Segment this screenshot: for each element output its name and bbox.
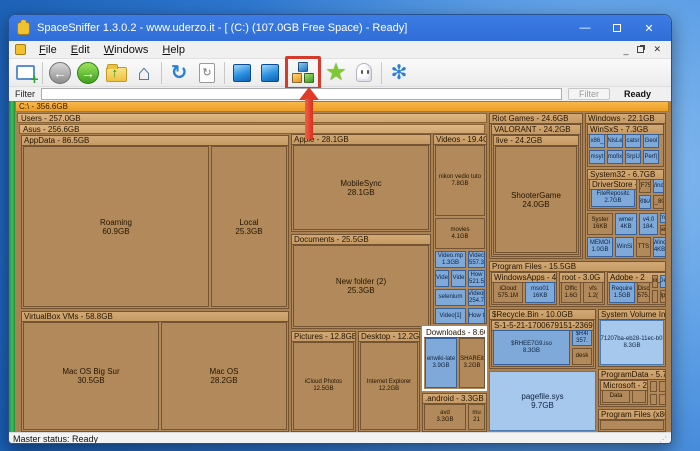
- minimize-button[interactable]: —: [571, 18, 599, 38]
- node-msyt[interactable]: msyt: [589, 150, 605, 164]
- node-icloud[interactable]: iCloud575.1M: [493, 282, 523, 303]
- node-avd[interactable]: avd3.3GB: [424, 404, 466, 430]
- filter-label: Filter: [15, 89, 35, 99]
- node-icloud-label: iCloud575.1M: [498, 286, 518, 300]
- node-geol-label: Geol: [645, 138, 658, 145]
- node-data-label: Data: [610, 393, 623, 400]
- node-users[interactable]: Users - 257.0GB: [17, 113, 487, 123]
- node-pfx86-empty: [600, 420, 664, 430]
- node-android-header[interactable]: .android - 3.3GB: [423, 394, 486, 404]
- gear-flower-icon: ✻: [391, 60, 408, 85]
- node-v40[interactable]: v4.0184.: [639, 213, 658, 235]
- home-icon: ⌂: [137, 60, 150, 86]
- node-mu[interactable]: mu21: [468, 404, 485, 430]
- node-shootergame-label: ShooterGame24.0GB: [511, 191, 561, 209]
- node-wmer[interactable]: wmer4KB: [615, 213, 637, 235]
- settings-button[interactable]: ✻: [386, 60, 412, 86]
- toolbar-separator: [161, 62, 162, 84]
- node-windc[interactable]: Windc: [653, 179, 664, 193]
- node-how-label: How521.5: [469, 272, 484, 286]
- go-back-button[interactable]: ←: [47, 60, 73, 86]
- node-video-mp[interactable]: Video.mp1.3GB: [435, 251, 466, 268]
- filter-star-button[interactable]: ★: [323, 60, 349, 86]
- node-winsi[interactable]: WinSi: [615, 237, 634, 257]
- refresh-selection-button[interactable]: ↻: [194, 60, 220, 86]
- node-adobe-empty: [652, 290, 658, 303]
- mdi-restore-button[interactable]: [637, 46, 644, 53]
- node-shareit[interactable]: SHAREit3.2GB: [459, 338, 485, 388]
- titlebar[interactable]: SpaceSniffer 1.3.0.2 - www.uderzo.it - […: [9, 15, 671, 41]
- mdi-app-icon: [15, 44, 26, 55]
- menubar: File Edit Windows Help _ ✕: [9, 41, 671, 59]
- node-mofix-label: mofix: [608, 154, 622, 161]
- back-arrow-icon: ←: [49, 62, 71, 84]
- node-windows-header[interactable]: Windows - 22.1GB: [586, 114, 665, 124]
- node-require[interactable]: Require1.5GB: [609, 282, 635, 303]
- node-offic[interactable]: Offic1.6G: [561, 282, 581, 303]
- node-shareit-label: SHAREit3.2GB: [460, 356, 484, 370]
- node-v40-label: v4.0184.: [643, 217, 655, 231]
- node-perf[interactable]: Perf(: [643, 150, 659, 164]
- node-enwiki-late[interactable]: enwiki-late3.9GB: [425, 338, 457, 388]
- node-recycle-bin-header[interactable]: $Recycle.Bin - 10.0GB: [490, 310, 595, 320]
- annotation-arrow-shaft: [305, 99, 313, 139]
- node-virtualbox-vms-header[interactable]: VirtualBox VMs - 58.8GB: [22, 312, 288, 322]
- node-nisle-label: NisLe: [607, 138, 622, 145]
- toolbar-separator: [224, 62, 225, 84]
- node-movies[interactable]: movies4.1GB: [435, 218, 485, 249]
- node-macos[interactable]: Mac OS28.2GB: [161, 322, 287, 430]
- node-icloud-photos-label: iCloud Photos12.5GB: [305, 379, 342, 393]
- node-catsr[interactable]: catsr: [625, 134, 641, 148]
- toolbar-separator: [381, 62, 382, 84]
- ghost-icon: [356, 63, 372, 82]
- node-guid-file-label: {471207ba-eb28-11ec-b03c8.3GB: [600, 336, 664, 350]
- node-documents-header[interactable]: Documents - 25.5GB: [292, 235, 430, 245]
- node-de-label: De: [660, 278, 666, 285]
- mdi-minimize-button[interactable]: _: [623, 45, 628, 55]
- node-vide-1[interactable]: Vide: [435, 270, 449, 287]
- node-rltka[interactable]: RltkA: [639, 195, 651, 209]
- filter-status: Ready: [624, 89, 651, 99]
- node-geol[interactable]: Geol: [643, 134, 659, 148]
- node-data[interactable]: Data: [602, 390, 630, 403]
- node-srpu[interactable]: SrpU: [625, 150, 641, 164]
- refresh-document-icon: ↻: [199, 63, 215, 83]
- node-pd-e1: [650, 381, 657, 392]
- filter-button[interactable]: Filter: [568, 88, 610, 100]
- menu-file[interactable]: File: [32, 43, 64, 57]
- close-button[interactable]: ✕: [635, 18, 663, 38]
- treemap: C:\ - 356.6GBUsers - 257.0GBAsus - 256.6…: [15, 101, 671, 432]
- refresh-button[interactable]: ↻: [166, 60, 192, 86]
- node-live-header[interactable]: live - 24.2GB: [494, 136, 578, 146]
- node-syster[interactable]: Syster16KB: [587, 213, 613, 235]
- node-internet-explorer[interactable]: Internet Explorer12.2GB: [360, 342, 418, 430]
- node-x80[interactable]: X_80.: [653, 195, 664, 209]
- node-program-files-header[interactable]: Program Files - 15.5GB: [490, 262, 665, 272]
- node-guid-file[interactable]: {471207ba-eb28-11ec-b03c8.3GB: [600, 320, 664, 365]
- node-how-t-label: How t: [469, 313, 484, 320]
- node-catsr-label: catsr: [626, 138, 639, 145]
- resize-grip[interactable]: ⋰: [659, 435, 667, 444]
- node-set-label: set: [660, 227, 666, 234]
- maximize-icon: [613, 24, 621, 32]
- node-shootergame[interactable]: ShooterGame24.0GB: [495, 146, 577, 253]
- cube-icon: [233, 64, 251, 82]
- node-riot-games-header[interactable]: Riot Games - 24.6GB: [490, 114, 582, 124]
- menu-edit[interactable]: Edit: [64, 43, 97, 57]
- colored-cubes-icon: [292, 62, 314, 84]
- node-movies-label: movies4.1GB: [450, 227, 469, 241]
- node-enwiki-late-label: enwiki-late3.9GB: [427, 356, 455, 370]
- node-roaming[interactable]: Roaming60.9GB: [23, 146, 209, 307]
- node-videc[interactable]: Videc557.3: [468, 251, 485, 268]
- node-video-mp-label: Video.mp1.3GB: [438, 253, 463, 267]
- filter-bar: Filter Filter Ready: [9, 87, 671, 101]
- node-winc[interactable]: Winc4KB: [653, 237, 666, 257]
- node-tts[interactable]: TTS: [636, 237, 651, 257]
- node-c-drive[interactable]: C:\ - 356.6GB: [15, 101, 669, 112]
- node-mu-label: mu21: [472, 410, 480, 424]
- refresh-icon: ↻: [171, 60, 188, 85]
- toolbar-separator: [42, 62, 43, 84]
- node-mi-label: mi: [660, 215, 666, 222]
- node-macos-big-sur[interactable]: Mac OS Big Sur30.5GB: [23, 322, 159, 430]
- node-npc-label: Npc: [660, 293, 666, 300]
- ghost-filter-button[interactable]: [351, 60, 377, 86]
- new-view-icon: [16, 65, 35, 80]
- node-bin-label: bin: [652, 278, 658, 285]
- more-detail-button[interactable]: [257, 60, 283, 86]
- node-vfs-label: vfs1.2(: [588, 286, 598, 300]
- node-disc-label: Disc575.: [638, 286, 650, 300]
- file-classes-button[interactable]: [290, 60, 316, 86]
- node-pd-e2: [659, 381, 666, 392]
- toolbar: ← → ⌂ ↻ ↻ ★ ✻: [9, 59, 671, 87]
- node-nisle[interactable]: NisLe: [607, 134, 623, 148]
- app-icon: [17, 22, 30, 35]
- node-appdata-header[interactable]: AppData - 86.5GB: [22, 136, 288, 146]
- node-vfs[interactable]: vfs1.2(: [583, 282, 603, 303]
- node-srpu-label: SrpU: [626, 154, 640, 161]
- node-internet-explorer-label: Internet Explorer12.2GB: [367, 379, 411, 393]
- node-perf-label: Perf(: [644, 154, 657, 161]
- menu-windows[interactable]: Windows: [97, 43, 156, 57]
- node-f75[interactable]: {F75: [639, 179, 651, 193]
- node-vide-2[interactable]: Vide: [451, 270, 466, 287]
- node-msyt-label: msyt: [591, 154, 604, 161]
- less-detail-button[interactable]: [229, 60, 255, 86]
- node-selenium-label: selenium: [438, 294, 462, 301]
- node-macos-label: Mac OS28.2GB: [210, 367, 239, 385]
- mdi-close-button[interactable]: ✕: [653, 44, 661, 55]
- home-button[interactable]: ⌂: [131, 60, 157, 86]
- node-ms-empty: [632, 390, 646, 403]
- node-de[interactable]: De: [660, 275, 666, 288]
- node-tts-label: TTS: [638, 244, 649, 251]
- node-local-label: Local25.3GB: [235, 218, 262, 236]
- node-filerepository[interactable]: FileRepositc2.7GB: [591, 189, 635, 207]
- node-roaming-label: Roaming60.9GB: [100, 218, 132, 236]
- node-vide-2-label: Vide: [453, 275, 465, 282]
- node-r4i[interactable]: $R4I357.: [572, 330, 592, 346]
- node-desk-label: desk: [576, 353, 589, 360]
- node-mso01[interactable]: mso0116KB: [525, 282, 555, 303]
- node-x80-label: X_80.: [653, 199, 664, 206]
- node-vide-1-label: Vide: [436, 275, 448, 282]
- node-selenium[interactable]: selenium: [435, 289, 466, 306]
- node-f75-label: {F75: [639, 183, 651, 190]
- forward-arrow-icon: →: [77, 62, 99, 84]
- node-filerepository-label: FileRepositc2.7GB: [596, 191, 629, 205]
- node-mi[interactable]: mi: [660, 213, 666, 223]
- node-rltka-label: RltkA: [639, 199, 651, 206]
- node-npc[interactable]: Npc: [660, 290, 666, 303]
- node-icloud-photos[interactable]: iCloud Photos12.5GB: [293, 342, 354, 430]
- node-x86-label: x86_: [590, 138, 603, 145]
- node-x86[interactable]: x86_: [589, 134, 605, 148]
- node-memory[interactable]: MEMOI1.0GB: [587, 237, 613, 257]
- node-videos-header[interactable]: Videos - 19.4GB: [434, 135, 486, 145]
- node-desk[interactable]: desk: [572, 348, 592, 365]
- node-pictures-header[interactable]: Pictures - 12.8GB: [292, 332, 355, 342]
- node-pd-e3: [650, 394, 657, 405]
- node-syster-label: Syster16KB: [591, 217, 608, 231]
- node-video-bracket[interactable]: Video[254.7: [468, 289, 485, 306]
- node-pagefile-label: pagefile.sys9.7GB: [521, 392, 563, 410]
- node-videc-label: Videc557.3: [469, 253, 484, 267]
- node-offic-label: Offic1.6G: [564, 286, 577, 300]
- node-video-1[interactable]: Video[1]: [435, 308, 466, 324]
- node-new-folder-2-label: New folder (2)25.3GB: [336, 277, 386, 295]
- status-bar: Master status: Ready ⋰: [9, 432, 671, 444]
- window-title: SpaceSniffer 1.3.0.2 - www.uderzo.it - […: [37, 22, 571, 34]
- master-status-text: Master status: Ready: [13, 434, 98, 444]
- node-avd-label: avd3.3GB: [436, 410, 453, 424]
- node-new-folder-2[interactable]: New folder (2)25.3GB: [293, 245, 429, 327]
- node-macos-big-sur-label: Mac OS Big Sur30.5GB: [62, 367, 119, 385]
- node-bin[interactable]: bin: [652, 275, 658, 288]
- maximize-button[interactable]: [603, 18, 631, 38]
- node-pd-e4: [659, 394, 666, 405]
- menu-help[interactable]: Help: [155, 43, 192, 57]
- node-how[interactable]: How521.5: [468, 270, 485, 287]
- node-how-t[interactable]: How t: [468, 308, 485, 324]
- node-local[interactable]: Local25.3GB: [211, 146, 287, 307]
- cube-icon: [261, 64, 279, 82]
- node-rhee7g9-label: $RHEE7G9.iso8.3GB: [511, 341, 552, 355]
- node-program-files-x86-header[interactable]: Program Files (x86) - 4.1GB: [599, 410, 665, 420]
- node-mobilesync[interactable]: MobileSync28.1GB: [293, 145, 429, 230]
- parent-folder-button[interactable]: [103, 60, 129, 86]
- node-r4i-label: $R4I357.: [576, 331, 589, 345]
- node-mobilesync-label: MobileSync28.1GB: [340, 179, 381, 197]
- folder-up-icon: [106, 67, 127, 82]
- annotation-highlight-box: [285, 56, 321, 90]
- node-asus[interactable]: Asus - 256.6GB: [19, 124, 485, 134]
- node-valorant-header[interactable]: VALORANT - 24.2GB: [492, 125, 580, 135]
- treemap-area: C:\ - 356.6GBUsers - 257.0GBAsus - 256.6…: [9, 101, 671, 432]
- node-rhee7g9[interactable]: $RHEE7G9.iso8.3GB: [493, 330, 570, 365]
- node-video-bracket-label: Video[254.7: [468, 291, 485, 305]
- node-memory-label: MEMOI1.0GB: [590, 240, 610, 254]
- node-video-1-label: Video[1]: [440, 313, 462, 320]
- node-disc[interactable]: Disc575.: [637, 282, 650, 303]
- node-desktop-header[interactable]: Desktop - 12.2GB: [359, 332, 419, 342]
- node-pagefile[interactable]: pagefile.sys9.7GB: [489, 371, 596, 431]
- node-downloads-header[interactable]: Downloads - 8.6GB: [424, 328, 485, 338]
- node-winsi-label: WinSi: [617, 244, 633, 251]
- node-windc-label: Windc: [653, 183, 664, 190]
- spacesniffer-window: SpaceSniffer 1.3.0.2 - www.uderzo.it - […: [8, 14, 672, 444]
- new-view-button[interactable]: [12, 60, 38, 86]
- node-winc-label: Winc4KB: [653, 240, 666, 254]
- node-nikon-vedio[interactable]: nikon vedio tuto7.8GB: [435, 145, 485, 216]
- node-programdata-header[interactable]: ProgramData - 5.7GB: [599, 370, 665, 380]
- star-icon: ★: [325, 58, 347, 87]
- node-mso01-label: mso0116KB: [531, 286, 549, 300]
- go-forward-button[interactable]: →: [75, 60, 101, 86]
- node-mofix[interactable]: mofix: [607, 150, 623, 164]
- node-wmer-label: wmer4KB: [619, 217, 634, 231]
- node-sys-vol-info-header[interactable]: System Volume Informatio: [599, 310, 665, 320]
- node-nikon-vedio-label: nikon vedio tuto7.8GB: [439, 174, 481, 188]
- node-require-label: Require1.5GB: [611, 286, 632, 300]
- node-set[interactable]: set: [660, 225, 666, 235]
